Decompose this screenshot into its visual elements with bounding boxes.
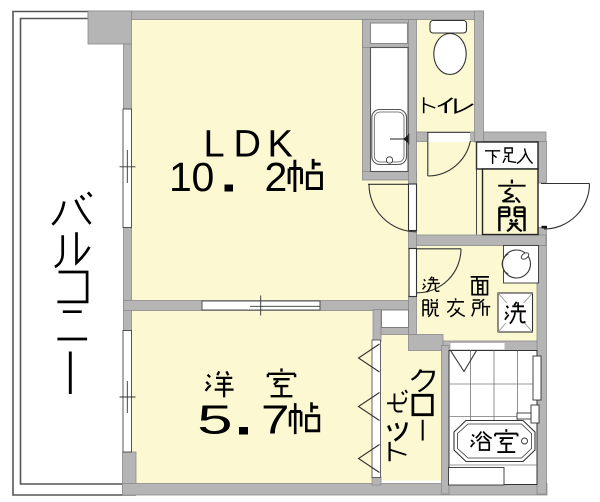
svg-text:2: 2 [265, 154, 288, 200]
svg-text:5: 5 [197, 397, 232, 442]
svg-text:7: 7 [261, 396, 290, 442]
svg-text:10: 10 [169, 154, 214, 200]
